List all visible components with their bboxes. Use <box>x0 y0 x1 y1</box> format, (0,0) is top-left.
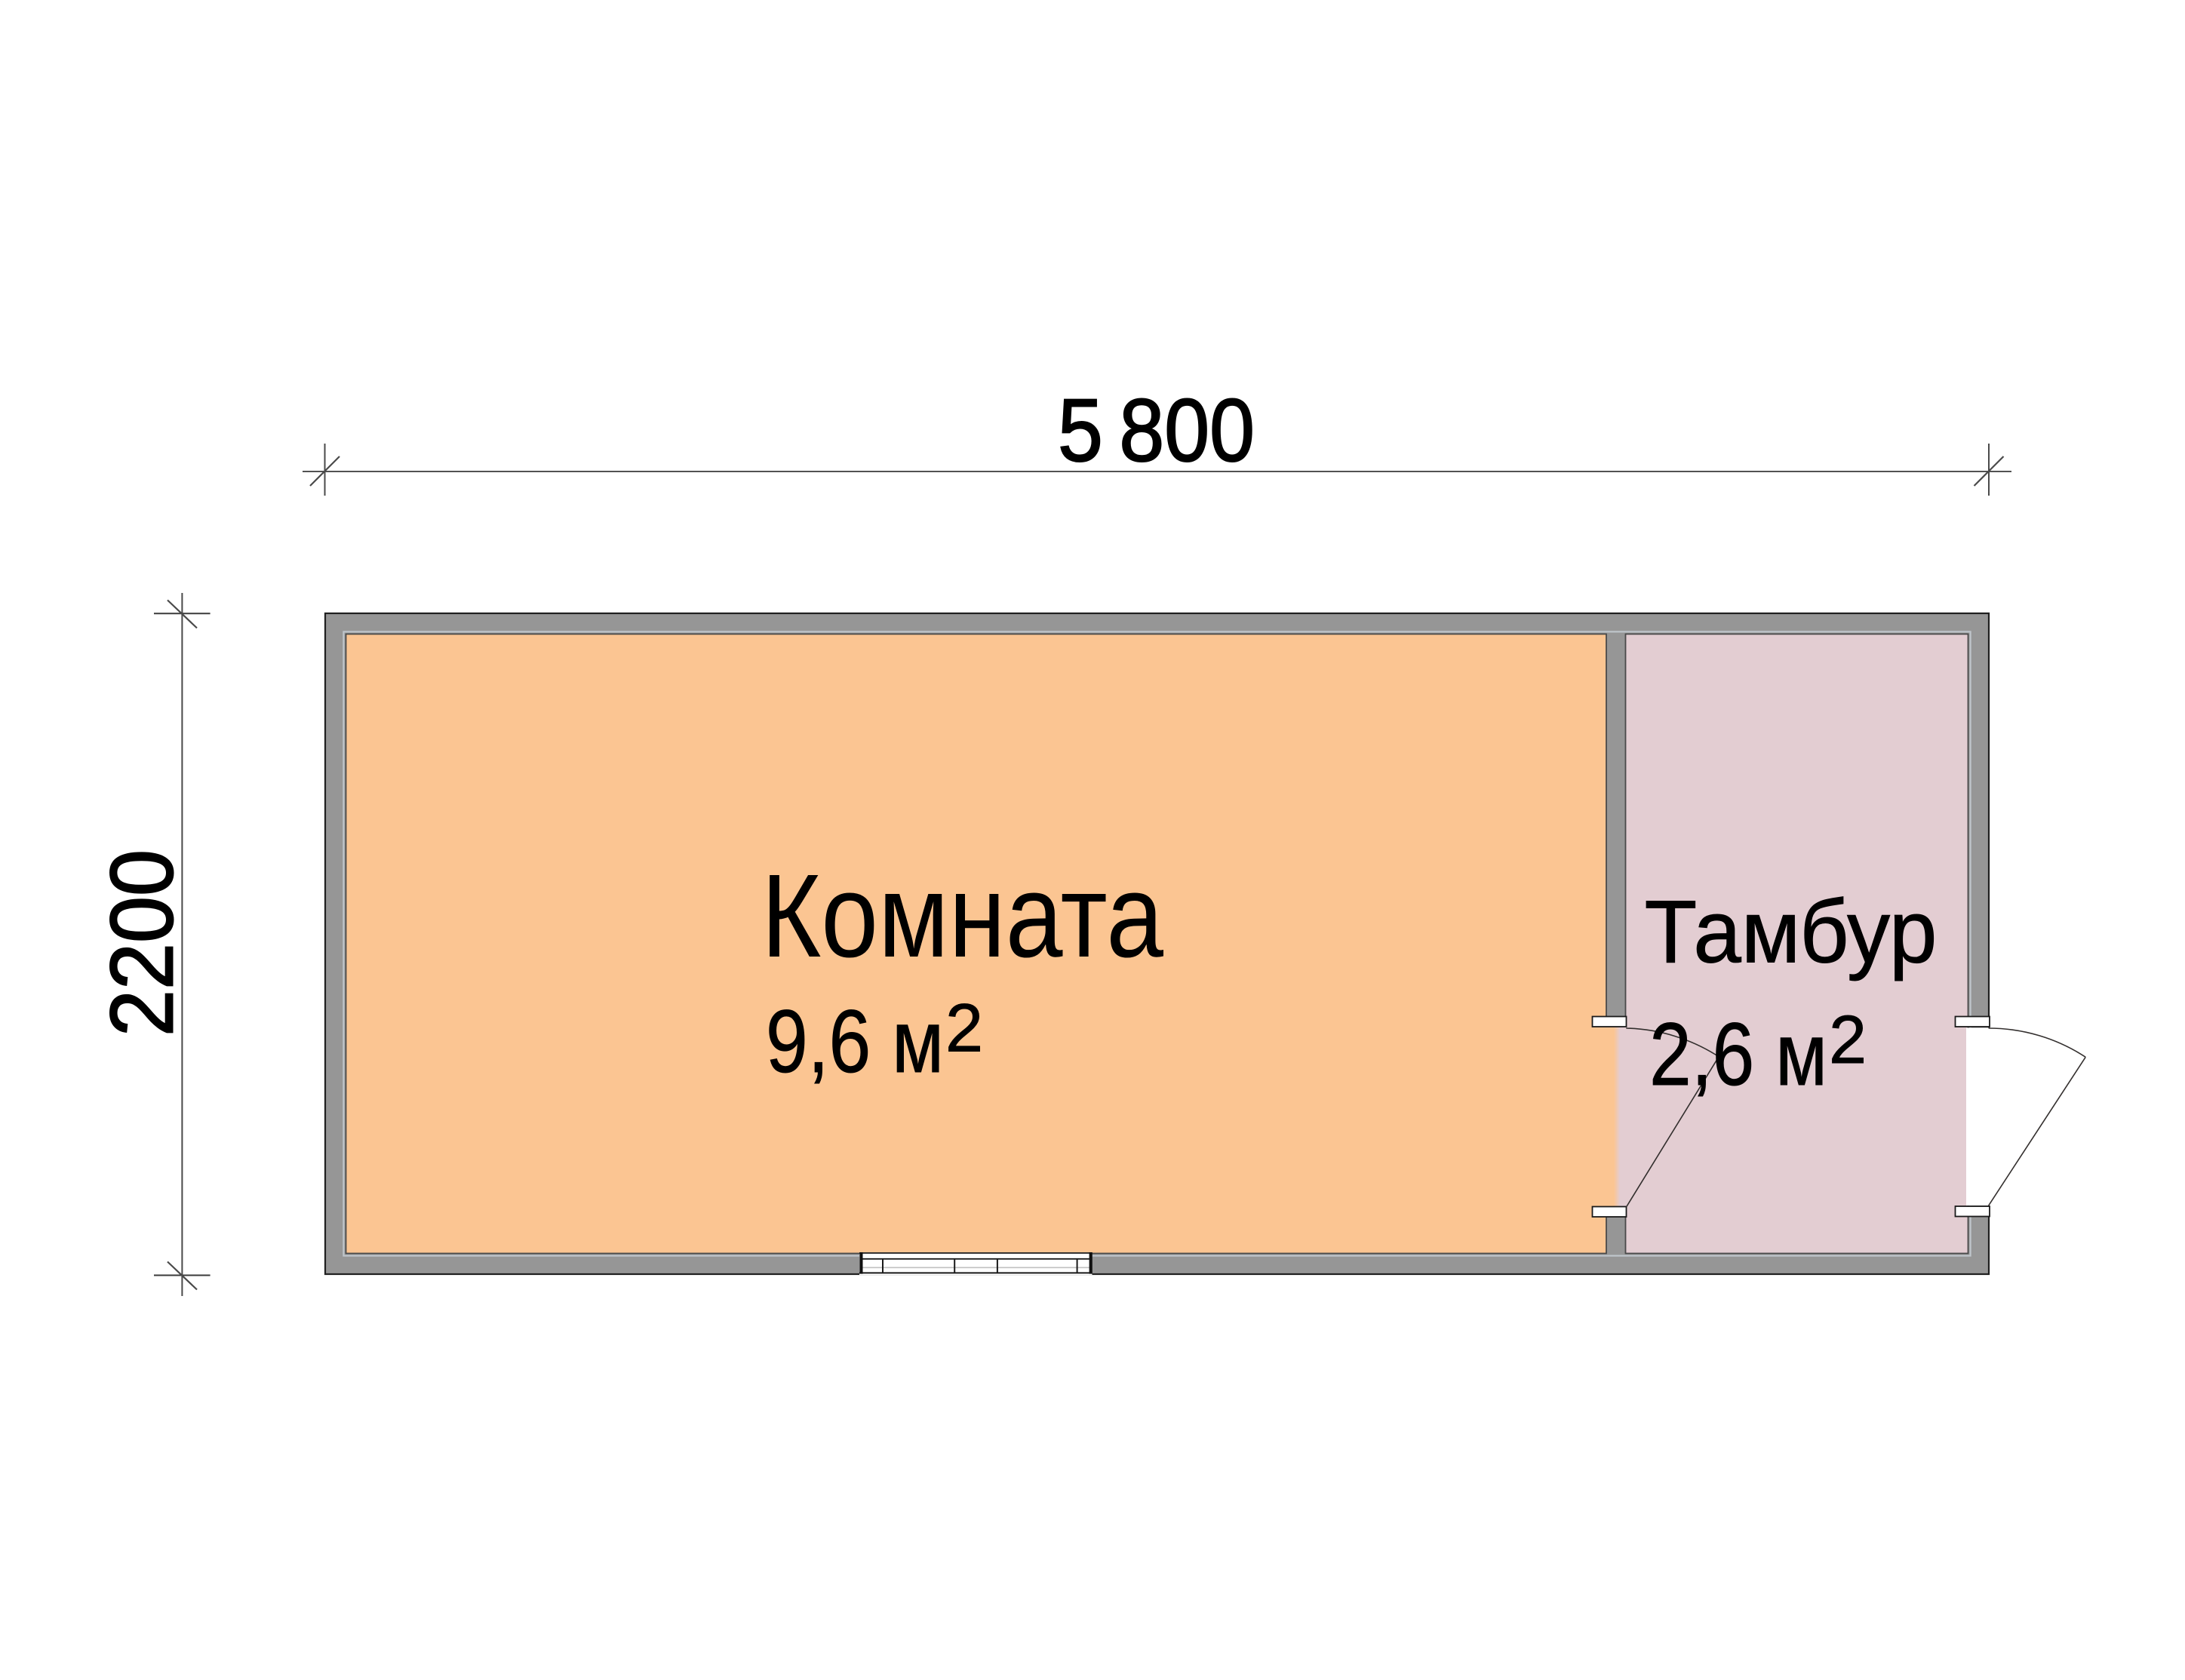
svg-text:2200: 2200 <box>93 849 192 1037</box>
svg-text:5 800: 5 800 <box>1058 381 1255 481</box>
svg-text:Тамбур: Тамбур <box>1645 883 1938 982</box>
svg-text:Комната: Комната <box>761 850 1164 982</box>
